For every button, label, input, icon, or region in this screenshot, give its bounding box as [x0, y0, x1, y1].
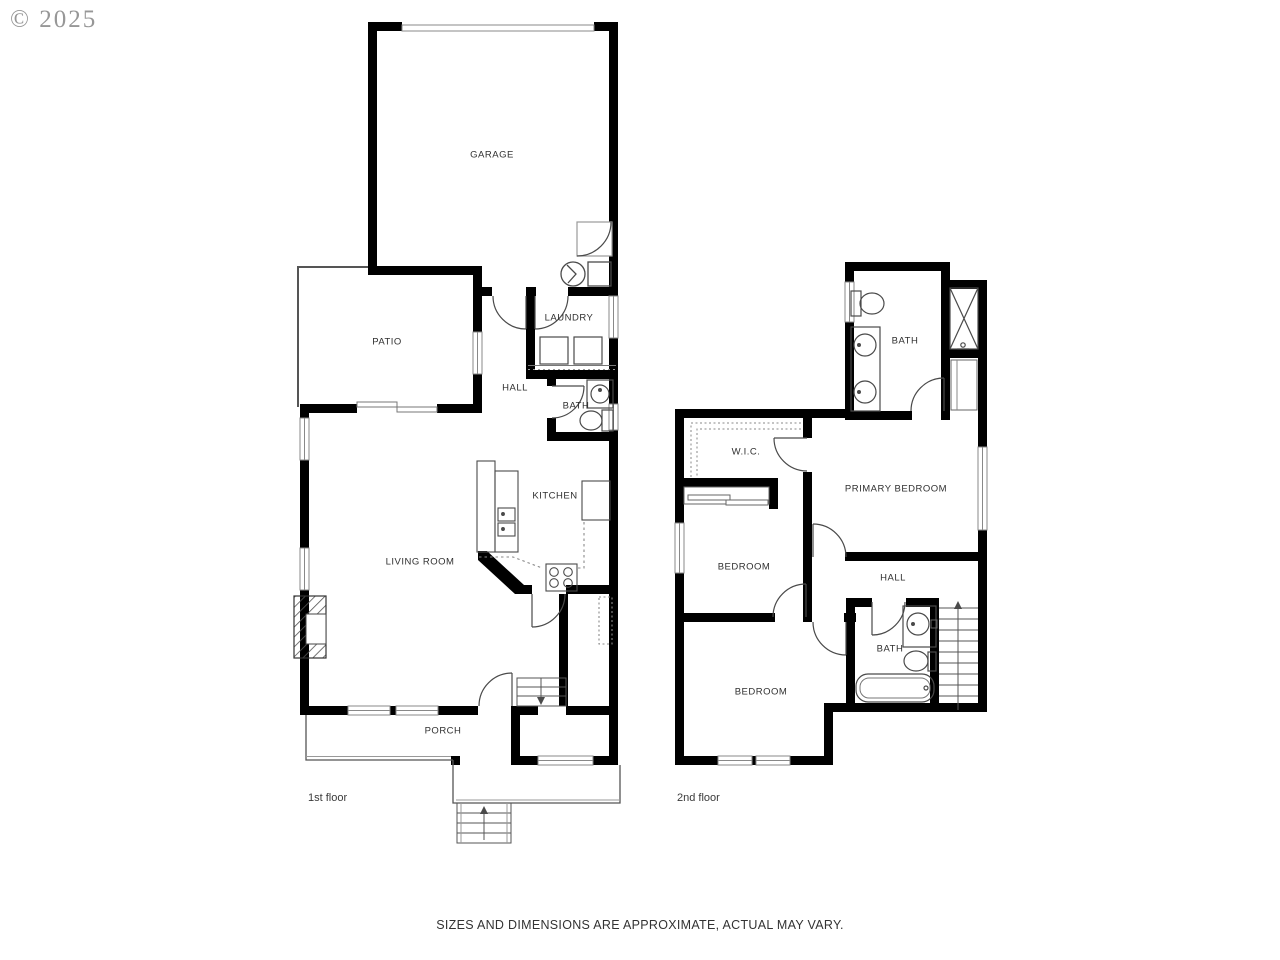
- entry-steps: [457, 803, 511, 843]
- window: [718, 756, 752, 765]
- window: [675, 523, 684, 573]
- shower-icon: [950, 288, 978, 349]
- stairs-second-floor: [939, 601, 978, 710]
- toilet-icon: [851, 291, 884, 316]
- bath-top-door: [911, 378, 944, 411]
- kitchen-fixtures: [477, 461, 612, 644]
- room-label-hall-2f: HALL: [880, 573, 906, 584]
- linen-closet: [951, 360, 977, 410]
- kitchen-island: [477, 461, 518, 552]
- window: [473, 332, 482, 374]
- window: [348, 706, 390, 715]
- first-floor-windows: [300, 296, 618, 765]
- washer-dryer-icons: [528, 337, 616, 370]
- front-door: [479, 673, 512, 706]
- garage-door: [402, 25, 594, 31]
- room-label-bedroom-middle: BEDROOM: [718, 562, 771, 573]
- window: [300, 548, 309, 590]
- wic-door: [774, 438, 807, 471]
- room-label-wic: W.I.C.: [732, 447, 761, 458]
- bedroom-lower-door: [813, 622, 846, 655]
- window: [756, 756, 790, 765]
- room-label-bath-hall: BATH: [877, 644, 904, 655]
- window: [538, 756, 593, 765]
- first-floor-caption: 1st floor: [308, 792, 347, 804]
- disclaimer-text: SIZES AND DIMENSIONS ARE APPROXIMATE, AC…: [436, 918, 844, 932]
- patio-outline: [298, 267, 368, 407]
- bedroom-closet: [684, 487, 769, 505]
- water-heater-icon: [561, 262, 611, 286]
- kitchen-counter: [582, 481, 610, 520]
- floor-plan-drawing: [0, 0, 1280, 960]
- room-label-garage: GARAGE: [470, 150, 514, 161]
- room-label-laundry: LAUNDRY: [545, 313, 594, 324]
- second-floor-plan: [675, 262, 987, 765]
- kitchen-sink-icon: [498, 508, 515, 536]
- primary-bedroom-door: [813, 524, 846, 557]
- stairs-first-floor: [517, 678, 566, 706]
- room-label-hall-1f: HALL: [502, 383, 528, 394]
- room-label-primary-bedroom: PRIMARY BEDROOM: [845, 484, 947, 495]
- room-label-bedroom-lower: BEDROOM: [735, 687, 788, 698]
- patio-sliding-door: [357, 402, 437, 412]
- bathtub-icon: [856, 674, 934, 702]
- window: [300, 418, 309, 460]
- double-vanity-icon: [851, 327, 880, 411]
- second-floor-caption: 2nd floor: [677, 792, 720, 804]
- first-floor-plan: [294, 22, 620, 843]
- bath-top-fixtures: [851, 288, 978, 411]
- second-floor-windows: [675, 282, 987, 765]
- window: [978, 447, 987, 530]
- fireplace-icon: [294, 596, 326, 658]
- room-label-patio: PATIO: [372, 337, 402, 348]
- room-label-bath-top: BATH: [892, 336, 919, 347]
- bath-hall-door: [872, 602, 905, 635]
- window: [609, 296, 618, 338]
- floor-plan-page: © 2025: [0, 0, 1280, 960]
- room-label-porch: PORCH: [425, 726, 462, 737]
- room-label-bath-1f: BATH: [563, 401, 590, 412]
- toilet-icon: [580, 410, 613, 431]
- garage-hall-door: [493, 296, 526, 329]
- garage-entry-door: [577, 222, 612, 256]
- second-floor-walls: [675, 262, 987, 765]
- room-label-living-room: LIVING ROOM: [386, 557, 455, 568]
- first-floor-walls: [300, 22, 618, 765]
- room-label-kitchen: KITCHEN: [532, 491, 577, 502]
- window: [396, 706, 438, 715]
- bedroom-middle-door: [773, 584, 806, 617]
